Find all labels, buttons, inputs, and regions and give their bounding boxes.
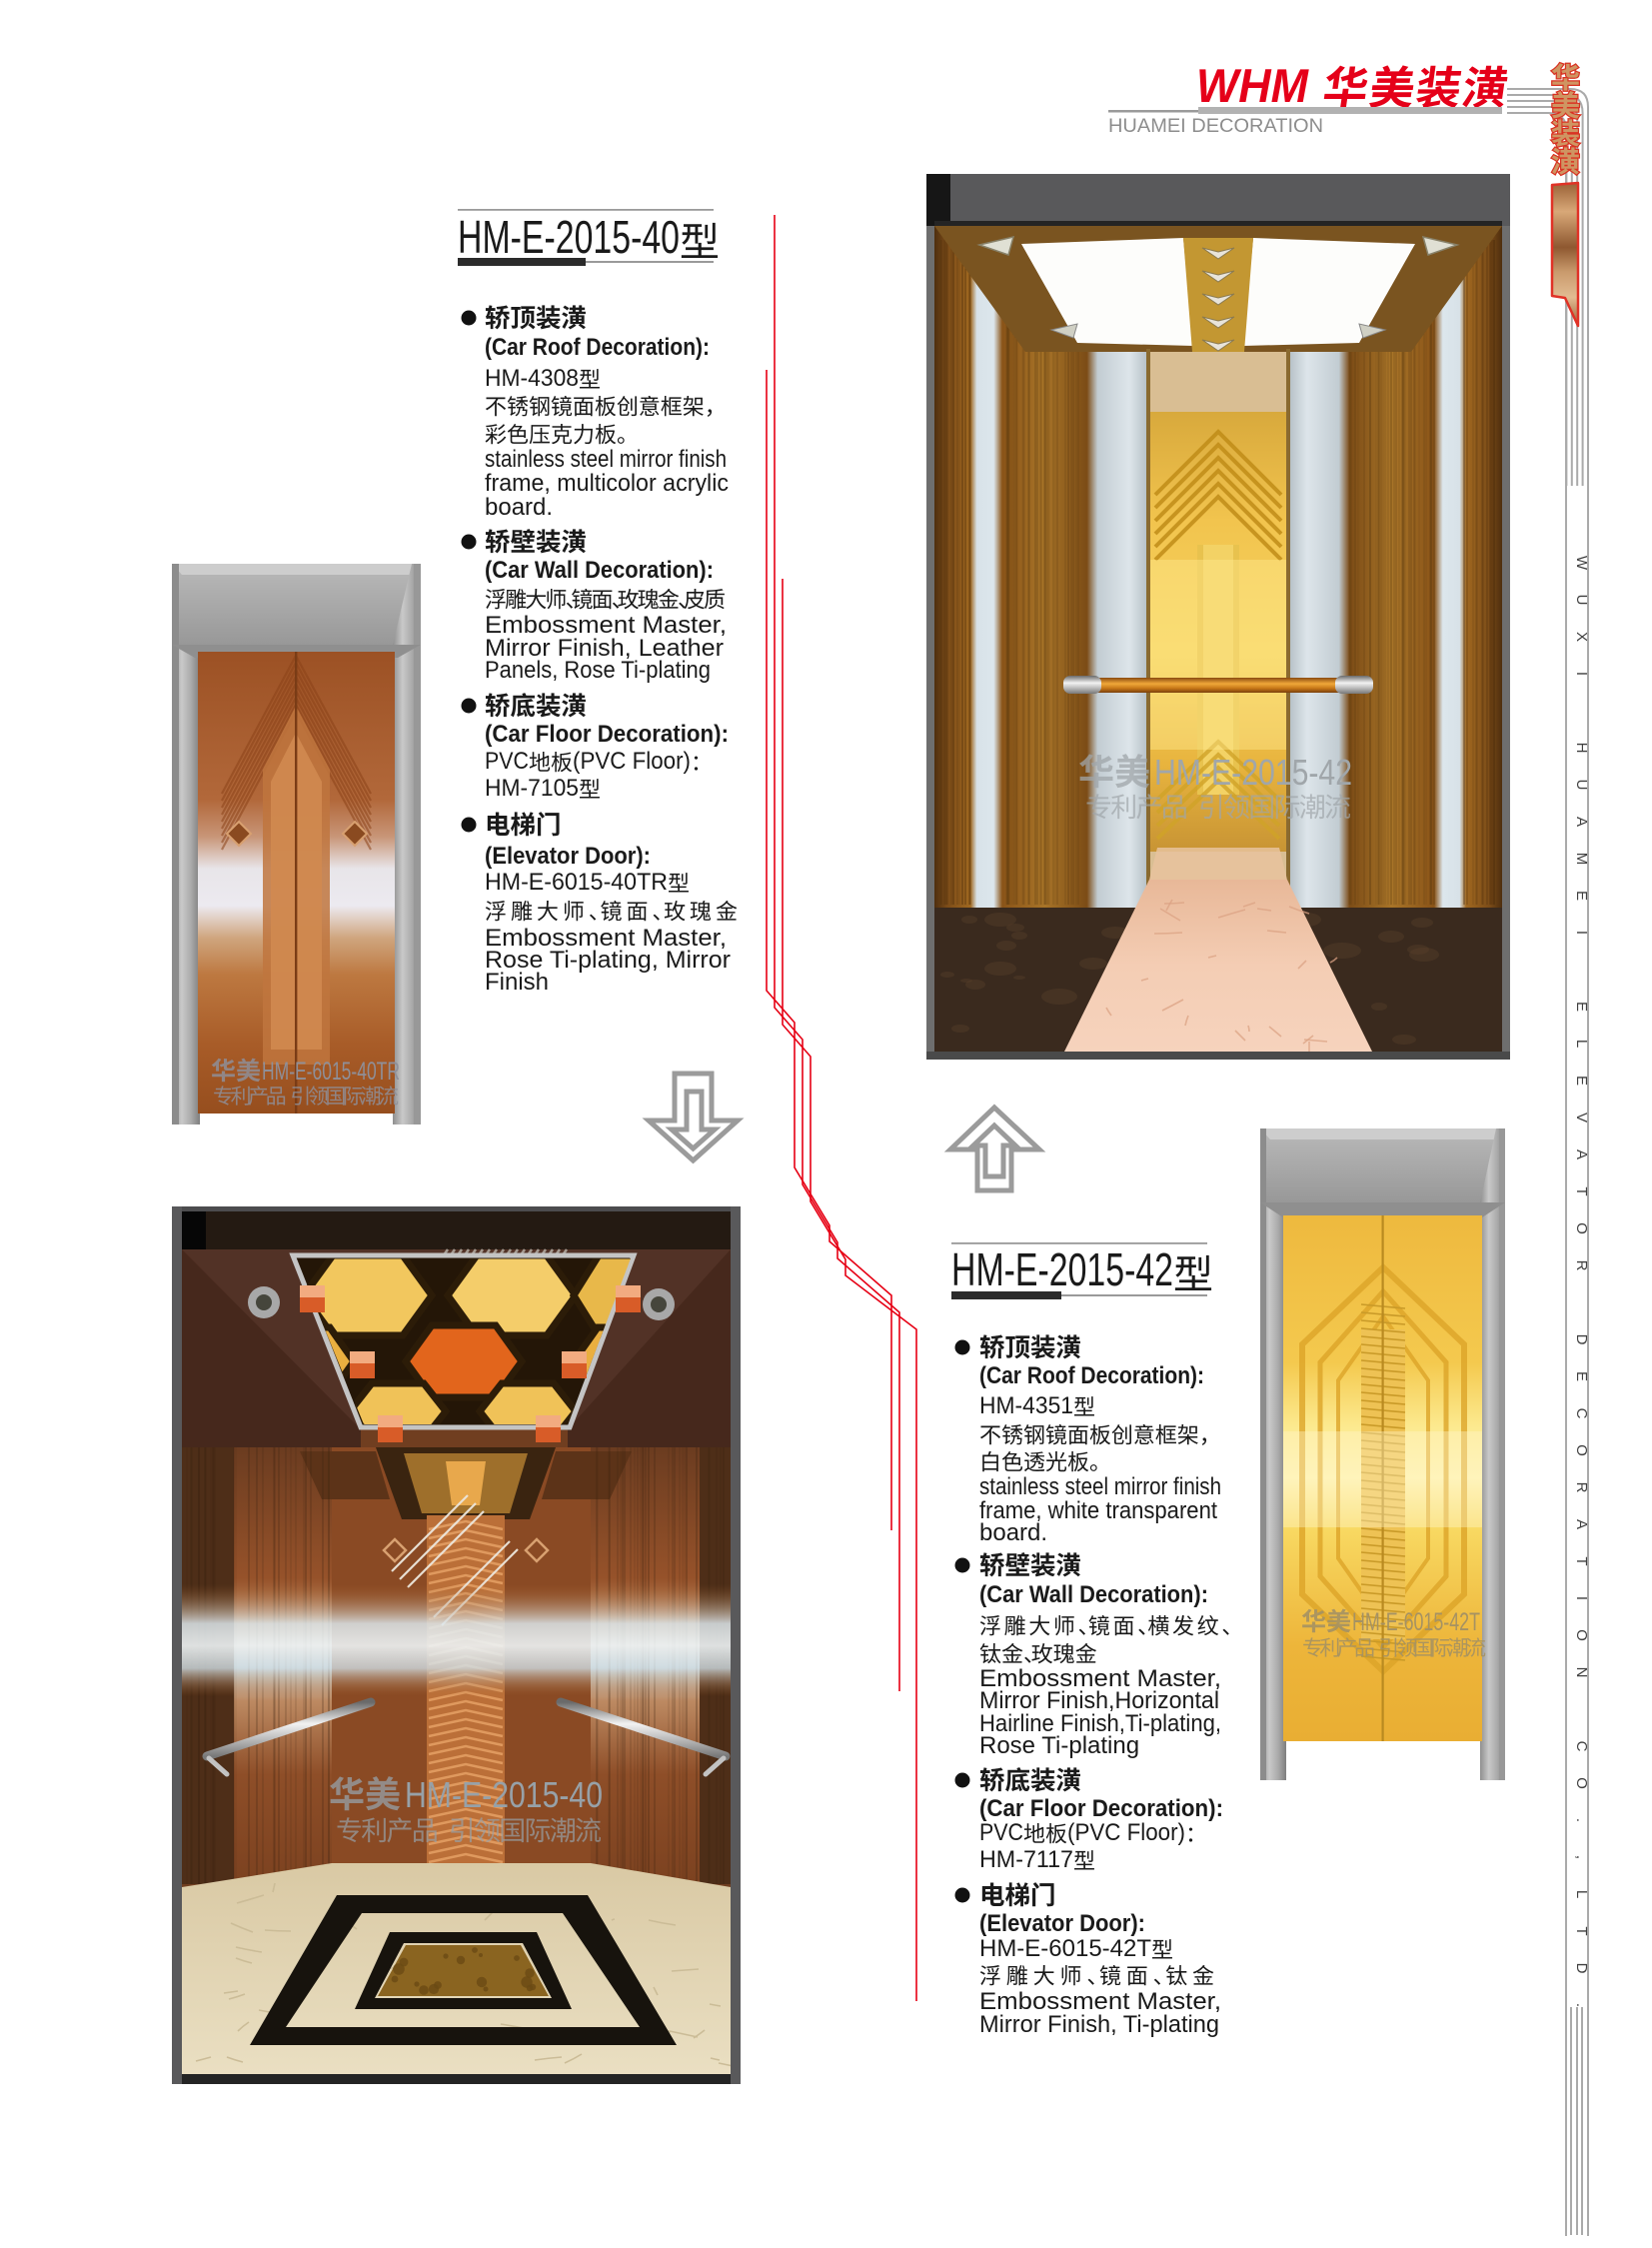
svg-text:.: .	[1573, 1818, 1590, 1822]
svg-text:N: N	[1573, 1667, 1590, 1678]
svg-text:Panels, Rose Ti-plating: Panels, Rose Ti-plating	[485, 657, 711, 684]
svg-text:HM-7117: HM-7117	[979, 1846, 1073, 1873]
svg-text:U: U	[1573, 595, 1590, 606]
svg-text:HM-E-6015-42T: HM-E-6015-42T	[979, 1935, 1151, 1962]
svg-text:E: E	[1573, 1076, 1590, 1086]
svg-text:HM-E-2015-40: HM-E-2015-40	[458, 211, 680, 263]
svg-text:.: .	[1573, 2003, 1590, 2007]
svg-text:H: H	[1573, 743, 1590, 754]
svg-text:(Elevator Door):: (Elevator Door):	[979, 1910, 1145, 1937]
svg-text:HM-E-6015-42T: HM-E-6015-42T	[1352, 1608, 1480, 1636]
svg-text:O: O	[1573, 1222, 1590, 1234]
svg-text:HM-4351: HM-4351	[979, 1392, 1073, 1419]
svg-text:A: A	[1573, 1149, 1590, 1159]
svg-text:(PVC Floor): (PVC Floor)	[573, 748, 691, 775]
svg-text:Finish: Finish	[485, 969, 549, 996]
svg-text:board.: board.	[485, 494, 553, 521]
svg-text:L: L	[1573, 1890, 1590, 1898]
svg-text:D: D	[1573, 1963, 1590, 1974]
svg-text:I: I	[1573, 672, 1590, 676]
svg-text:frame, multicolor acrylic: frame, multicolor acrylic	[485, 470, 729, 497]
svg-text:PVC: PVC	[485, 748, 529, 775]
svg-text:A: A	[1573, 817, 1590, 827]
svg-text:PVC: PVC	[979, 1819, 1023, 1846]
svg-text:O: O	[1573, 1777, 1590, 1789]
svg-text:(Car Floor Decoration):: (Car Floor Decoration):	[485, 721, 729, 748]
svg-text:(PVC Floor): (PVC Floor)	[1067, 1819, 1185, 1846]
svg-text:(Car Wall Decoration):: (Car Wall Decoration):	[485, 557, 714, 584]
svg-text:HM-E-2015-42: HM-E-2015-42	[951, 1243, 1173, 1295]
svg-text:Rose Ti-plating: Rose Ti-plating	[979, 1732, 1139, 1759]
svg-text:stainless steel mirror finish: stainless steel mirror finish	[979, 1473, 1221, 1500]
svg-text:W: W	[1573, 556, 1590, 571]
svg-text:HUAMEI DECORATION: HUAMEI DECORATION	[1108, 116, 1323, 137]
svg-text:O: O	[1573, 1444, 1590, 1456]
svg-text:X: X	[1573, 632, 1590, 642]
svg-text:(Car Wall Decoration):: (Car Wall Decoration):	[979, 1581, 1208, 1608]
svg-text:(Car Roof Decoration):: (Car Roof Decoration):	[485, 334, 710, 361]
svg-text:(Car Roof Decoration):: (Car Roof Decoration):	[979, 1362, 1204, 1389]
svg-text:HM-4308: HM-4308	[485, 365, 579, 392]
svg-text:D: D	[1573, 1334, 1590, 1345]
svg-text:C: C	[1573, 1408, 1590, 1419]
svg-text:HM-E-6015-40TR: HM-E-6015-40TR	[485, 869, 668, 896]
svg-text:T: T	[1573, 1556, 1590, 1565]
svg-text:stainless steel mirror finish: stainless steel mirror finish	[485, 446, 727, 473]
svg-text:E: E	[1573, 1371, 1590, 1381]
svg-text:V: V	[1573, 1113, 1590, 1123]
svg-text:E: E	[1573, 891, 1590, 901]
svg-text:HM-E-2015-42: HM-E-2015-42	[1154, 752, 1352, 793]
svg-text:U: U	[1573, 780, 1590, 791]
svg-text:O: O	[1573, 1629, 1590, 1641]
svg-text:,: ,	[1573, 1855, 1590, 1859]
svg-text:board.: board.	[979, 1519, 1047, 1546]
svg-text:HM-7105: HM-7105	[485, 775, 579, 802]
svg-text:C: C	[1573, 1741, 1590, 1752]
svg-text:R: R	[1573, 1482, 1590, 1493]
svg-text:I: I	[1573, 1596, 1590, 1600]
svg-text:L: L	[1573, 1040, 1590, 1048]
svg-text:HM-E-2015-40: HM-E-2015-40	[405, 1774, 603, 1815]
svg-text:T: T	[1573, 1186, 1590, 1195]
svg-text:M: M	[1573, 853, 1590, 866]
svg-text:(Elevator Door):: (Elevator Door):	[485, 843, 651, 870]
svg-text:I: I	[1573, 931, 1590, 935]
svg-text:R: R	[1573, 1260, 1590, 1271]
svg-text:T: T	[1573, 1926, 1590, 1935]
svg-text:E: E	[1573, 1002, 1590, 1012]
svg-text:WHM: WHM	[1196, 59, 1309, 112]
svg-text:Mirror Finish, Ti-plating: Mirror Finish, Ti-plating	[979, 2011, 1219, 2038]
svg-text:A: A	[1573, 1519, 1590, 1529]
svg-text:HM-E-6015-40TR: HM-E-6015-40TR	[262, 1058, 400, 1086]
